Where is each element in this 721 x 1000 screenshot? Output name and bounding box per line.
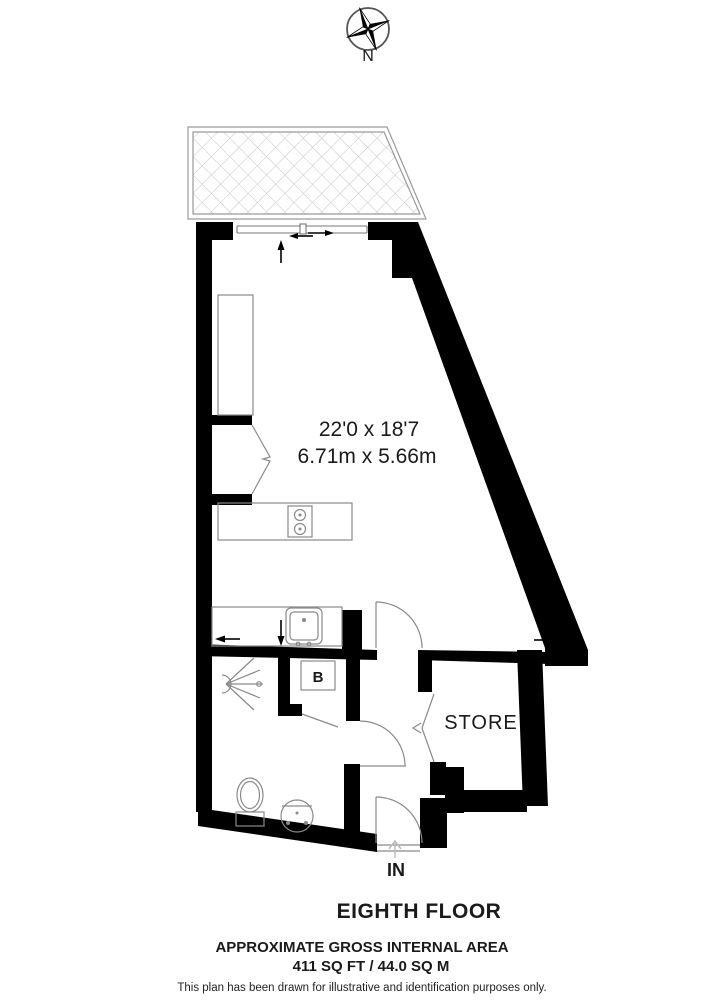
store-label: STORE: [444, 712, 518, 734]
balcony: [188, 127, 426, 219]
boiler-cupboard: B: [301, 661, 335, 690]
store-bifold-door-icon: [413, 694, 434, 762]
hob-icon: [288, 506, 312, 537]
cupboard-door-icon: [302, 714, 338, 727]
room-dimensions-metric: 6.71m x 5.66m: [298, 445, 437, 468]
area-value: 411 SQ FT / 44.0 SQ M: [293, 958, 450, 975]
entry-arrow-icon: [389, 841, 401, 858]
sink-icon: [286, 608, 322, 646]
boiler-label: B: [313, 669, 324, 686]
living-room-door-icon: [376, 602, 422, 648]
floorplan-page: N: [0, 0, 721, 1000]
room-dimensions-imperial: 22'0 x 18'7: [319, 418, 419, 441]
kitchen-counter: [218, 503, 352, 540]
walls: [196, 222, 588, 852]
compass-north-label: N: [362, 48, 374, 65]
compass-rose-icon: N: [338, 0, 398, 65]
entrance-door-icon: [376, 797, 422, 843]
floor-title: EIGHTH FLOOR: [337, 900, 502, 923]
area-heading: APPROXIMATE GROSS INTERNAL AREA: [215, 939, 508, 956]
window: [237, 224, 367, 234]
bathroom-door-icon: [360, 721, 406, 766]
sliding-door-arrows-icon: [289, 230, 334, 239]
disclaimer: This plan has been drawn for illustrativ…: [177, 982, 546, 994]
bathroom: [222, 658, 313, 832]
entrance-label: IN: [387, 860, 405, 880]
bifold-closet-door-icon: [252, 425, 270, 494]
shower-head-icon: [222, 658, 263, 710]
kitchen: [212, 295, 352, 646]
floorplan-drawing: N: [0, 0, 721, 1000]
tall-unit: [218, 295, 253, 415]
